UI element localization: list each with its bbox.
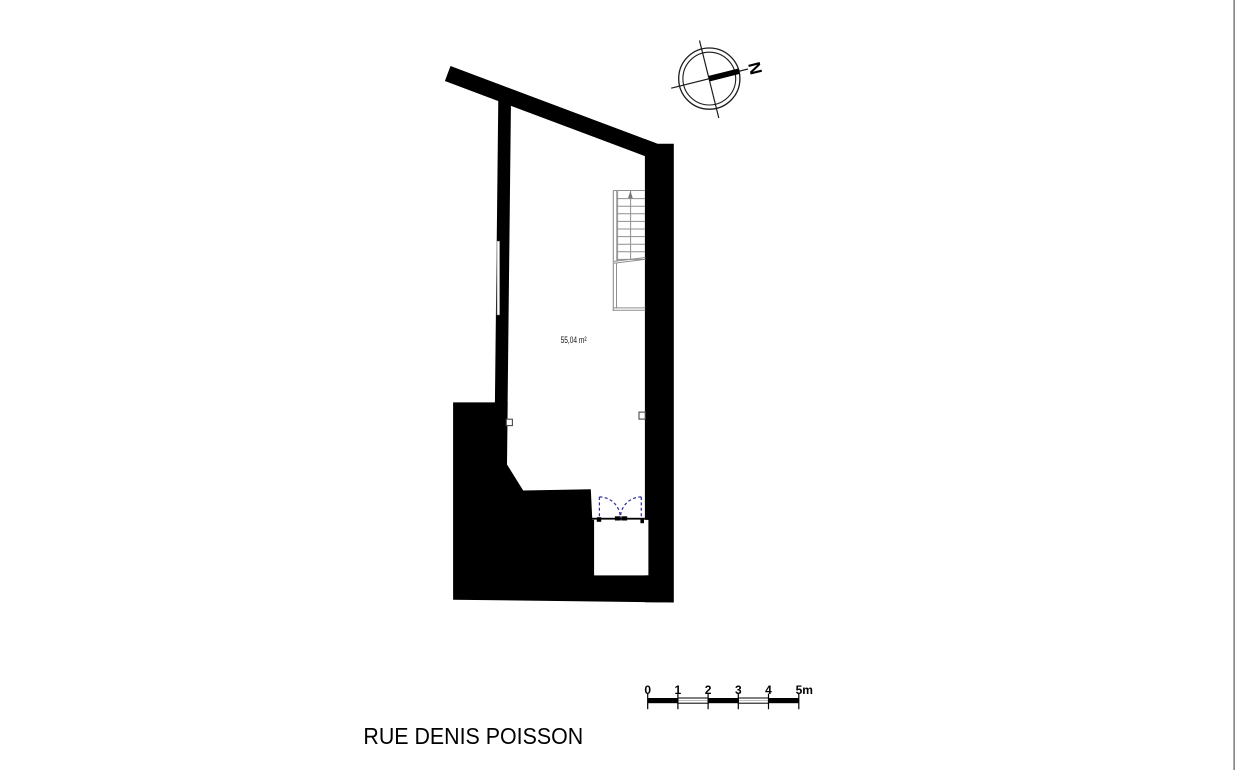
svg-text:4: 4 bbox=[765, 683, 772, 697]
svg-text:3: 3 bbox=[735, 683, 742, 697]
svg-text:2: 2 bbox=[705, 683, 712, 697]
svg-text:0: 0 bbox=[644, 683, 651, 697]
svg-text:55,04 m²: 55,04 m² bbox=[561, 335, 587, 345]
svg-text:RUE DENIS POISSON: RUE DENIS POISSON bbox=[363, 723, 583, 749]
svg-text:5m: 5m bbox=[796, 683, 813, 697]
svg-text:1: 1 bbox=[675, 683, 682, 697]
